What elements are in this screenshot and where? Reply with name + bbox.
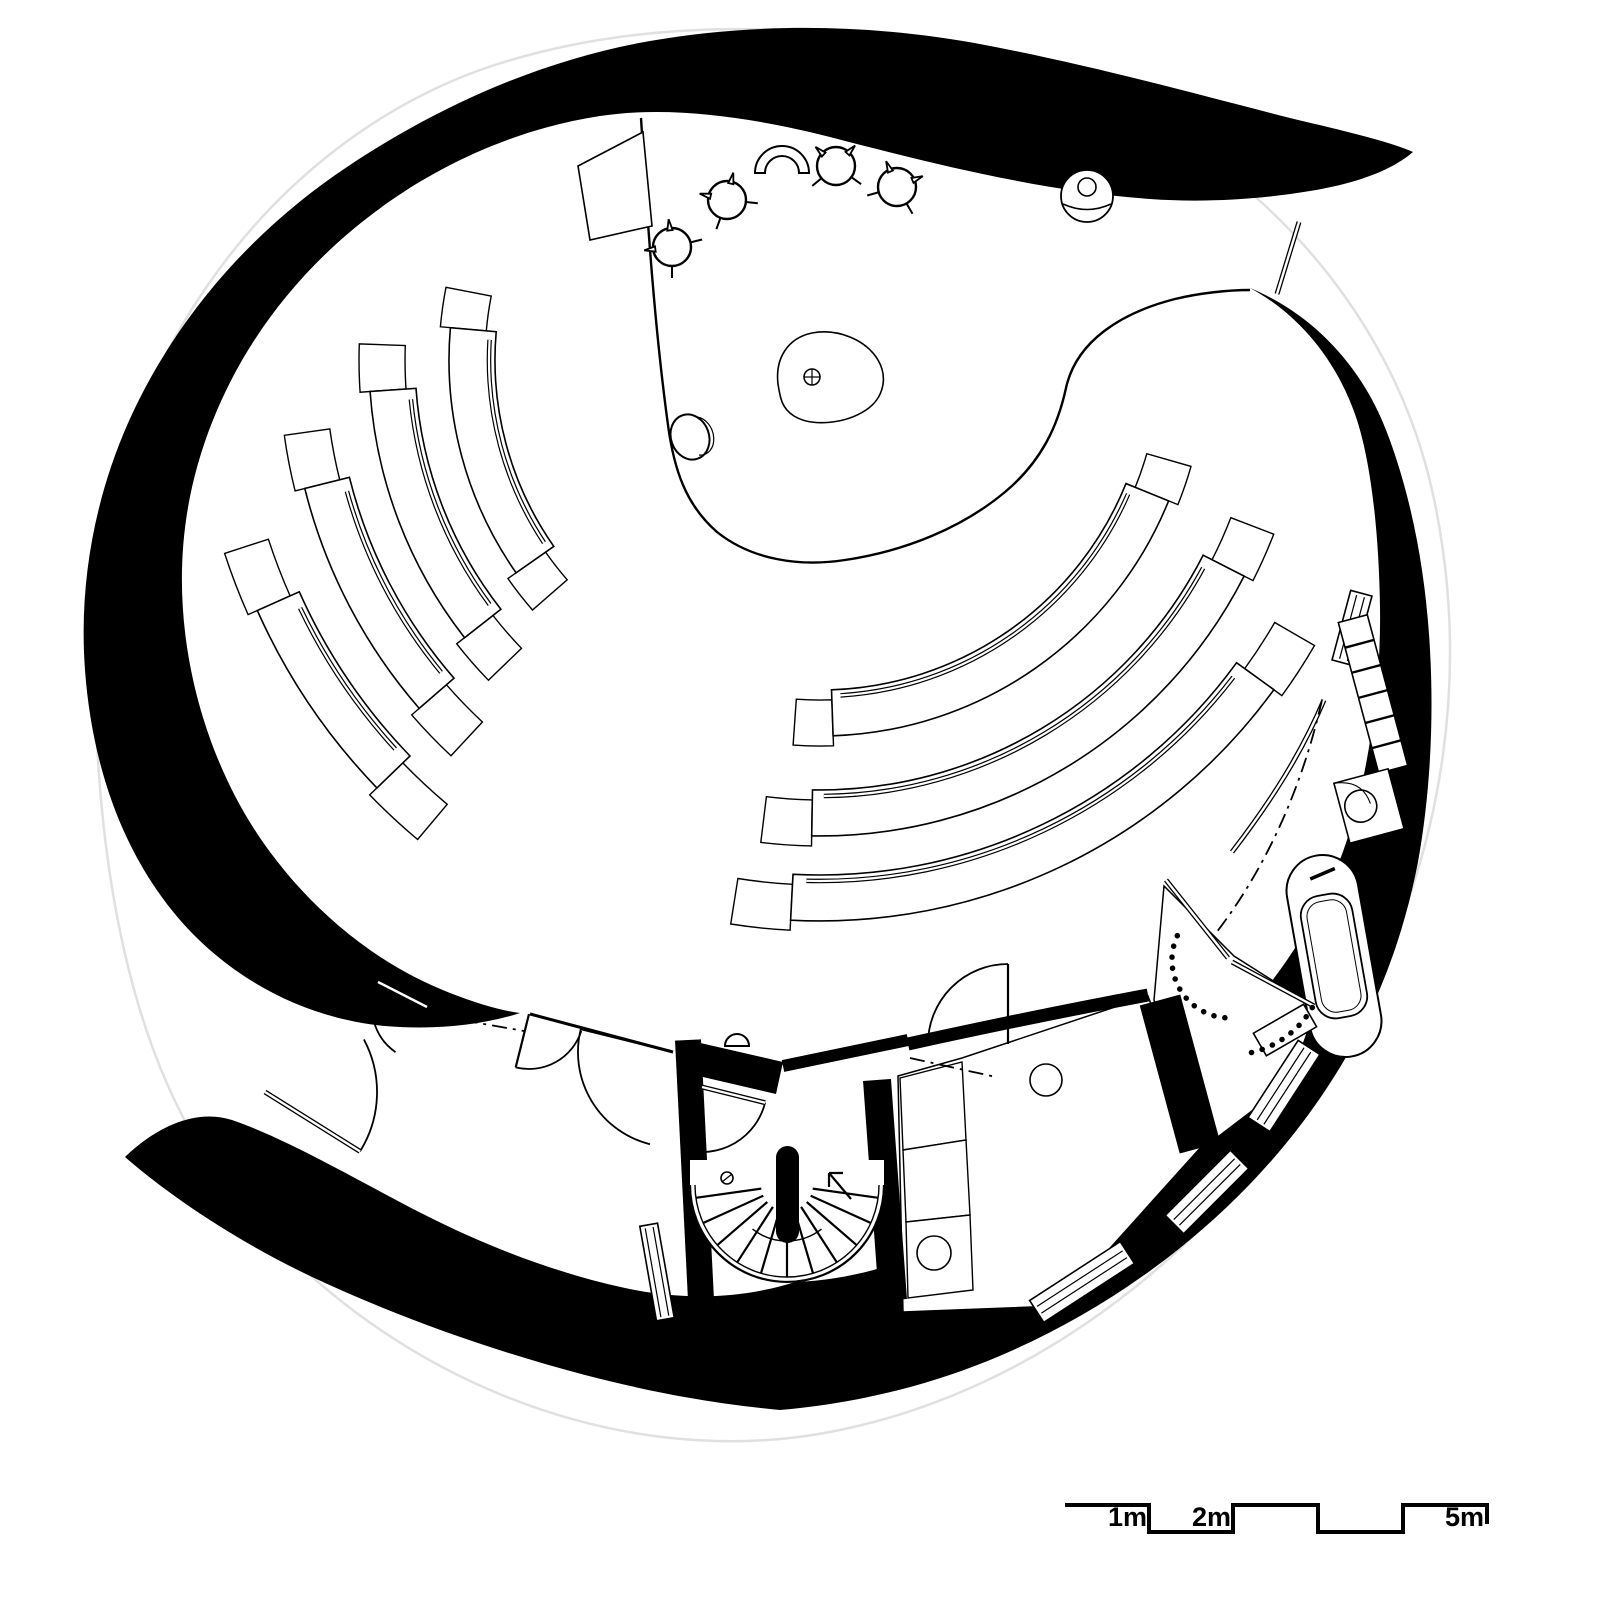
scale-label-5m: 5m bbox=[1445, 1502, 1484, 1533]
column-half-round bbox=[725, 1034, 749, 1046]
chair-leg bbox=[690, 240, 703, 243]
scale-label-2m: 2m bbox=[1192, 1502, 1231, 1533]
chair-leg bbox=[716, 217, 720, 229]
entry-door-outer-swing bbox=[360, 1039, 377, 1151]
chair-armrest bbox=[886, 161, 893, 172]
celebrant-chair bbox=[755, 146, 809, 173]
chair-seat bbox=[708, 181, 746, 219]
floor-plan-canvas: 1m 2m 5m bbox=[0, 0, 1600, 1600]
chair-leg bbox=[906, 203, 913, 214]
stair-newel bbox=[776, 1146, 799, 1243]
vestibule-door-2-swing bbox=[578, 1029, 650, 1144]
chair-armrest bbox=[816, 147, 826, 157]
chair-leg bbox=[812, 178, 822, 186]
basin bbox=[1030, 1064, 1062, 1096]
person-head bbox=[1078, 178, 1096, 196]
vestibule-door-1-leaf bbox=[516, 1014, 529, 1067]
vestibule-door-2-leaf bbox=[581, 1029, 673, 1052]
chair-seat bbox=[878, 168, 916, 206]
altar-stone bbox=[778, 332, 884, 423]
bench-end-right bbox=[761, 797, 813, 846]
armchair-icon bbox=[867, 161, 923, 214]
kitchen-counter bbox=[900, 1062, 966, 1150]
chair-armrest bbox=[911, 176, 922, 183]
stair-lobby-door-leaf-core bbox=[702, 1087, 765, 1103]
chair-seat bbox=[653, 228, 691, 266]
bench-end-right bbox=[793, 699, 833, 746]
chair-armrest bbox=[728, 173, 733, 185]
kitchen-counter bbox=[903, 1140, 970, 1222]
armchair-icon bbox=[812, 146, 861, 186]
scale-label-1m: 1m bbox=[1108, 1502, 1147, 1533]
sink bbox=[917, 1236, 951, 1270]
bench-end-left bbox=[440, 287, 491, 331]
lobby-wall bbox=[783, 1040, 908, 1066]
entry-glazing-core bbox=[1277, 222, 1299, 294]
chair-leg bbox=[867, 192, 880, 196]
bench-end-right bbox=[731, 879, 793, 931]
pulpit bbox=[578, 132, 652, 240]
bench-end-left bbox=[359, 344, 406, 392]
chair-armrest bbox=[700, 194, 712, 199]
chair-leg bbox=[851, 177, 862, 185]
armchair-icon bbox=[700, 173, 758, 229]
vestibule-door-1-swing bbox=[516, 1031, 582, 1069]
armchair-icon bbox=[644, 219, 702, 278]
chair-armrest bbox=[667, 219, 672, 231]
chair-leg bbox=[745, 202, 758, 203]
baptismal-font bbox=[664, 409, 715, 465]
floor-plan-svg bbox=[0, 0, 1600, 1600]
chair-armrest bbox=[846, 146, 856, 156]
outer-wall-north bbox=[84, 28, 1413, 1028]
